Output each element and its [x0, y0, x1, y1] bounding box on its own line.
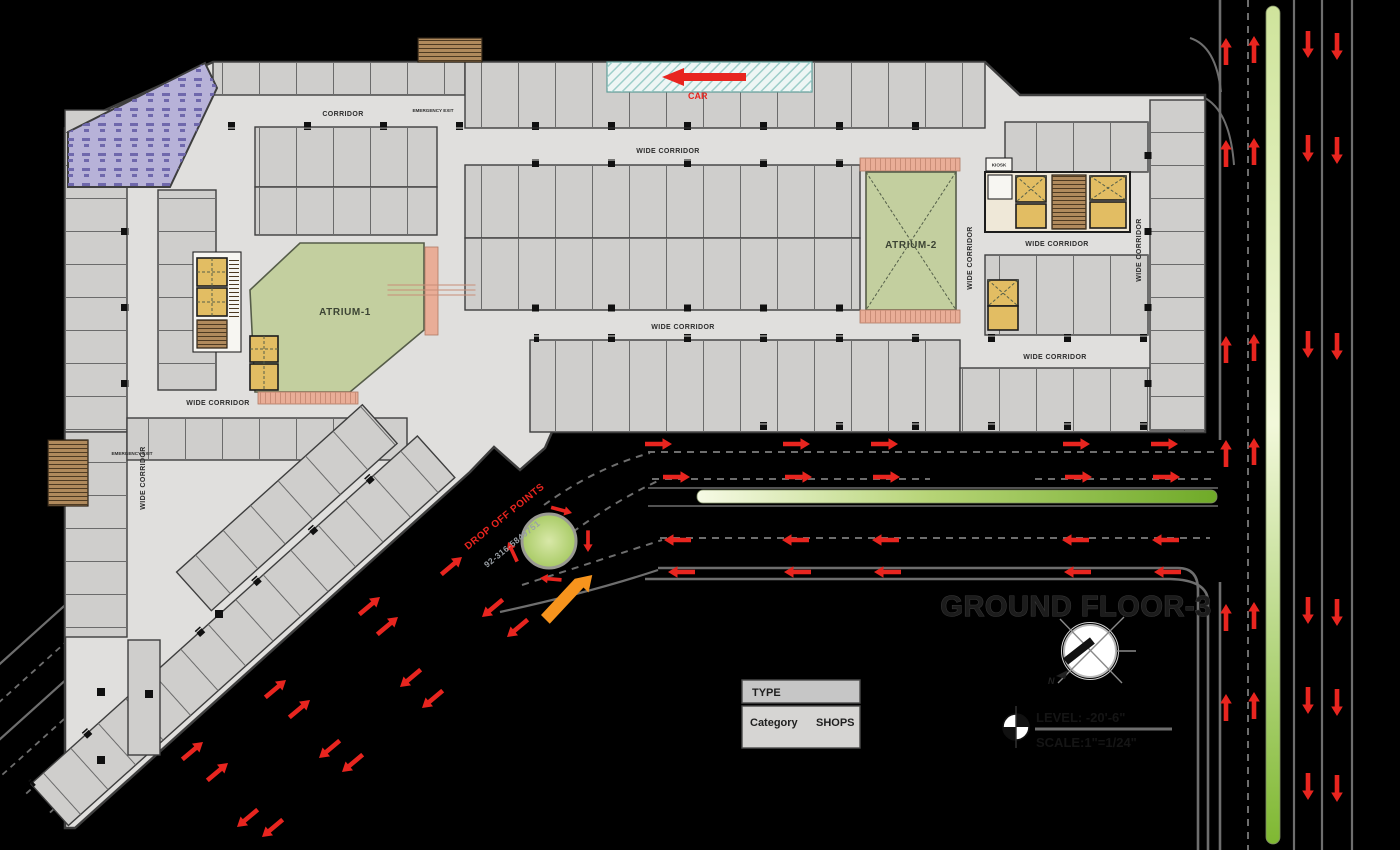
legend-table: TYPE Category SHOPS	[742, 680, 860, 748]
car-label: CAR	[688, 91, 708, 101]
drop-off-arrow	[541, 575, 592, 624]
wide-corridor-label: WIDE CORRIDOR	[636, 148, 700, 155]
building: CAR ATRIUM-1 ATRIUM-2	[0, 38, 1205, 828]
legend-category-value: SHOPS	[816, 717, 855, 729]
lift	[1090, 202, 1126, 228]
page-title: GROUND FLOOR-3	[940, 591, 1211, 623]
kiosk-label: KIOSK	[992, 163, 1007, 168]
atrium-1-label: ATRIUM-1	[319, 307, 371, 318]
emergency-stairs-left	[48, 440, 88, 506]
shop-band	[1005, 122, 1148, 172]
grass-median-horizontal	[697, 490, 1217, 503]
corridor-label: CORRIDOR	[322, 111, 363, 118]
shop-unit	[128, 640, 160, 755]
shop-band	[255, 127, 437, 187]
lift	[988, 306, 1018, 330]
legend-header-label: TYPE	[752, 687, 781, 699]
service-core-left	[193, 252, 241, 352]
emergency-stairs-top	[418, 38, 482, 62]
floor-plan-svg: CAR ATRIUM-1 ATRIUM-2	[0, 0, 1400, 850]
wide-corridor-label: WIDE CORRIDOR	[186, 400, 250, 407]
wide-corridor-label: WIDE CORRIDOR	[1023, 354, 1087, 361]
wide-corridor-label: WIDE CORRIDOR	[651, 324, 715, 331]
legend-category-label: Category	[750, 717, 799, 729]
atrium-2-label: ATRIUM-2	[885, 240, 937, 251]
shop-band	[213, 62, 465, 95]
atrium-2: ATRIUM-2	[860, 158, 960, 323]
wide-corridor-label: WIDE CORRIDOR	[1136, 218, 1143, 282]
north-letter: N	[1048, 676, 1055, 686]
shop-band	[255, 187, 437, 235]
level-scale-note: LEVEL: -20'-6" SCALE:1"=1/24"	[1003, 706, 1172, 750]
north-compass: N	[1048, 617, 1136, 686]
emergency-exit-label: EMERGENCY EXIT	[111, 451, 152, 456]
emergency-exit-label: EMERGENCY EXIT	[412, 108, 453, 113]
lift	[1016, 204, 1046, 228]
shop-band	[530, 340, 960, 432]
floor-plan-canvas: CAR ATRIUM-1 ATRIUM-2	[0, 0, 1400, 850]
shop-band	[465, 238, 860, 310]
scale-label: SCALE:1"=1/24"	[1036, 735, 1137, 750]
title-block: GROUND FLOOR-3 N LEVEL: -20'-6" SCALE:1"…	[940, 591, 1211, 750]
grass-median-vertical	[1266, 6, 1280, 844]
shop-band	[465, 165, 860, 238]
shop-band	[1150, 100, 1205, 430]
wide-corridor-label: WIDE CORRIDOR	[967, 226, 974, 290]
wide-corridor-label: WIDE CORRIDOR	[1025, 241, 1089, 248]
level-label: LEVEL: -20'-6"	[1036, 710, 1125, 725]
